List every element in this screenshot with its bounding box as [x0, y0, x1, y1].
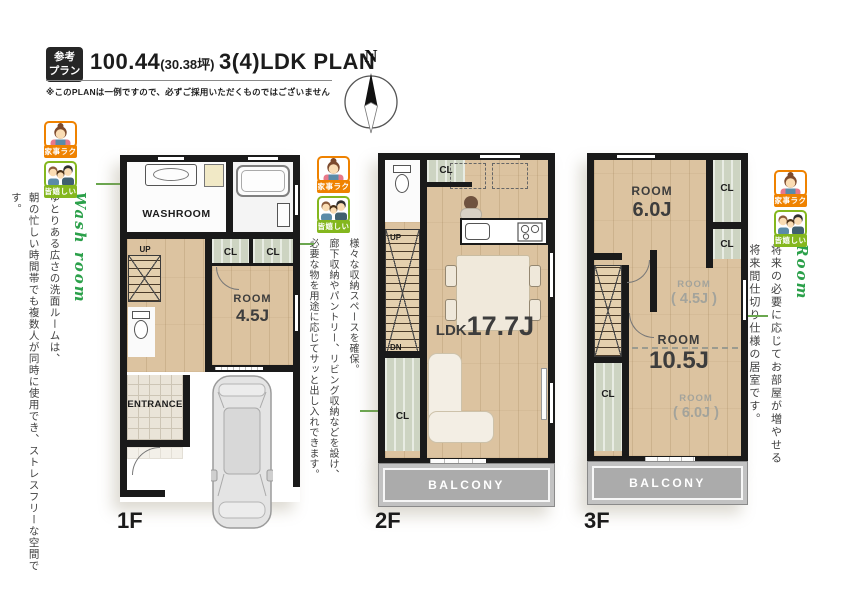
f3-wall — [706, 160, 713, 268]
f3-balcony-label: BALCONY — [629, 476, 706, 490]
f3-room4-name: ROOM — [657, 394, 735, 405]
f2-closet-side — [385, 358, 420, 451]
f1-wall — [226, 162, 233, 232]
f1-wall — [183, 375, 190, 447]
f1-room-label: ROOM 4.5J — [212, 293, 293, 325]
f3-room2-size: ( 4.5J ) — [655, 291, 733, 308]
f3-balcony-inner: BALCONY — [592, 466, 743, 500]
future-room-annotation-line1: 将来の必要に応じてお部屋が増やせる — [766, 244, 785, 482]
f1-garage-shutter — [215, 367, 263, 370]
badge-kaji-illustration — [317, 156, 350, 183]
f3-closet3-label: CL — [594, 389, 622, 400]
f1-shower-stand — [277, 203, 290, 227]
f1-room-name: ROOM — [212, 293, 293, 306]
floor3-plan: ROOM 6.0J CL CL ROOM ( 4.5J ) ROOM 10.5J… — [587, 153, 748, 463]
storage-annotation-line2: 廊下収納やパントリー、リビング収納などを設け、 — [324, 238, 341, 494]
f3-wall — [622, 357, 629, 456]
floor2-tag: 2F — [375, 508, 401, 534]
f3-room2-label: ROOM ( 4.5J ) — [655, 280, 733, 308]
storage-annotation-line3: 必要な物を用途に応じてサッと出し入れできます。 — [304, 238, 321, 494]
f2-window — [550, 383, 553, 423]
f1-wall — [120, 440, 190, 447]
washroom-annotation-line2: 朝の忙しい時間帯でも複数人が同時に使用でき、ストレスフリーな空間です。 — [6, 192, 42, 584]
f2-chair — [529, 265, 541, 287]
f2-wall-top — [378, 153, 555, 160]
f2-ldk-label: LDK17.7J — [422, 311, 548, 342]
f2-pantry-dashed — [492, 163, 528, 189]
badge-kaji-label: 家事ラク — [774, 194, 807, 207]
car-top-view — [211, 374, 273, 530]
f3-wall-top — [587, 153, 748, 160]
f1-toilet-room — [128, 307, 155, 357]
f3-wall — [594, 253, 622, 260]
f1-toilet-bowl — [134, 320, 148, 339]
f2-chair — [445, 265, 457, 287]
f2-wall — [427, 182, 472, 187]
f2-balcony-label: BALCONY — [428, 478, 505, 492]
f3-room3-size: 10.5J — [635, 347, 723, 375]
badge-ureshii-label: 皆嬉しい — [774, 234, 807, 247]
future-room-annotation: Room 将来の必要に応じてお部屋が増やせる 将来間仕切り仕様の居室です。 — [768, 244, 818, 482]
badge-ureshii-label: 皆嬉しい — [317, 220, 350, 233]
f2-kitchen-counter — [460, 218, 548, 245]
f1-closet1-label: CL — [212, 247, 249, 258]
f3-room3-name: ROOM — [635, 333, 723, 347]
f2-dn-label: DN — [387, 343, 417, 352]
reference-plan-badge-top: 参考 — [54, 51, 75, 64]
f1-cabinet — [204, 164, 224, 187]
badge-ureshii-illustration — [774, 210, 807, 237]
future-room-annotation-heading: Room — [789, 244, 815, 482]
f2-up-label: UP — [387, 233, 417, 242]
f1-window — [295, 295, 298, 331]
f1-toilet-tank — [132, 311, 150, 319]
f2-closet-side-label: CL — [385, 411, 420, 422]
f2-closet-top-label: CL — [427, 165, 465, 176]
reference-plan-badge-bottom: プラン — [49, 65, 81, 78]
f2-stairs — [385, 229, 420, 357]
f1-room-size: 4.5J — [212, 306, 293, 326]
badge-ureshii-right: 皆嬉しい — [774, 210, 807, 247]
floor2-plan: CL UP DN LDK17.7J CL — [378, 153, 555, 465]
f1-wall-left — [120, 155, 127, 497]
f3-wall-left — [587, 153, 594, 463]
title-area: 100.44 — [90, 49, 160, 74]
f1-washroom-label: WASHROOM — [127, 208, 226, 220]
badge-ureshii-label: 皆嬉しい — [44, 185, 77, 198]
f3-window — [743, 280, 746, 320]
badge-kaji-raku-right: 家事ラク — [774, 170, 807, 207]
washroom-annotation-heading: Wash room — [67, 192, 93, 584]
f1-closet2-label: CL — [253, 247, 293, 258]
f2-kitchen-sink — [465, 223, 490, 240]
f2-wall-left — [378, 153, 385, 465]
washroom-annotation-line1: ゆとりある広さの洗面ルームは、 — [45, 192, 63, 584]
f3-room1-size: 6.0J — [607, 199, 697, 222]
reference-plan-badge: 参考 プラン — [46, 47, 83, 82]
f1-window — [158, 157, 184, 160]
f1-bathtub — [236, 165, 290, 197]
f1-wall — [205, 239, 212, 372]
f2-window — [550, 253, 553, 297]
f2-toilet-bowl — [395, 174, 409, 193]
f1-wall — [120, 232, 300, 239]
disclaimer-text: ※このPLANは一例ですので、必ずご採用いただくものではございません — [46, 86, 330, 98]
f2-wall — [420, 351, 427, 458]
f1-entrance-label: ENTRANCE — [127, 399, 183, 410]
badge-kaji-label: 家事ラク — [317, 180, 350, 193]
f3-room4-size: ( 6.0J ) — [657, 405, 735, 422]
page-title: 100.44(30.38坪) 3(4)LDK PLAN — [90, 49, 375, 75]
f2-wall — [420, 160, 427, 222]
badge-ureshii-left: 皆嬉しい — [44, 161, 77, 198]
f2-sofa-horizontal — [428, 411, 494, 443]
badge-ureshii-illustration — [44, 161, 77, 188]
storage-annotation: 様々な収納スペースを確保。 廊下収納やパントリー、リビング収納などを設け、 必要… — [310, 238, 364, 494]
f2-balcony: BALCONY — [378, 463, 555, 507]
f2-toilet-room — [385, 160, 420, 222]
f3-closet2-label: CL — [713, 239, 741, 250]
title-divider — [46, 80, 332, 81]
f2-balcony-inner: BALCONY — [383, 468, 550, 502]
f3-closet3 — [594, 363, 622, 451]
f2-stove — [517, 222, 543, 242]
f3-window — [617, 155, 655, 158]
f3-balcony: BALCONY — [587, 461, 748, 505]
floorplan-page: 参考 プラン 100.44(30.38坪) 3(4)LDK PLAN ※このPL… — [0, 0, 842, 595]
f1-window — [248, 157, 278, 160]
f3-room4-label: ROOM ( 6.0J ) — [657, 394, 735, 422]
f1-washbasin — [145, 164, 197, 186]
badge-ureshii-illustration — [317, 196, 350, 223]
floor3-tag: 3F — [584, 508, 610, 534]
f3-stairs — [594, 265, 622, 357]
f3-wall — [594, 357, 622, 363]
compass-north-label: N — [365, 46, 378, 66]
badge-kaji-raku-mid: 家事ラク — [317, 156, 350, 193]
f2-window — [480, 155, 520, 158]
floor1-plan: WASHROOM UP CL CL ROOM 4.5J ENTRANCE — [120, 155, 300, 502]
washroom-annotation: Wash room ゆとりある広さの洗面ルームは、 朝の忙しい時間帯でも複数人が… — [34, 192, 96, 584]
badge-kaji-raku-left: 家事ラク — [44, 121, 77, 158]
compass-icon: N — [338, 45, 404, 137]
badge-kaji-label: 家事ラク — [44, 145, 77, 158]
f3-room1-name: ROOM — [607, 185, 697, 199]
f3-closet1-label: CL — [713, 183, 741, 194]
f1-window — [295, 185, 298, 215]
f1-up-label: UP — [130, 245, 160, 254]
badge-kaji-illustration — [774, 170, 807, 197]
f2-tv-board — [541, 368, 547, 420]
f1-stairs — [128, 255, 161, 302]
f3-room2-name: ROOM — [655, 280, 733, 291]
storage-annotation-line1: 様々な収納スペースを確保。 — [344, 238, 361, 494]
f2-ldk-size: 17.7J — [467, 311, 535, 341]
f1-washbasin-bowl — [153, 168, 189, 181]
f2-toilet-tank — [393, 165, 411, 173]
f1-wall — [212, 263, 293, 266]
title-tsubo: (30.38坪) — [160, 57, 214, 72]
f3-room1-label: ROOM 6.0J — [607, 185, 697, 222]
f3-room3-label: ROOM 10.5J — [635, 333, 723, 375]
badge-kaji-illustration — [44, 121, 77, 148]
f1-bathtub-inner — [241, 170, 285, 192]
f2-ldk-name: LDK — [436, 322, 467, 339]
f2-wall — [385, 351, 420, 358]
floor1-tag: 1F — [117, 508, 143, 534]
badge-ureshii-mid: 皆嬉しい — [317, 196, 350, 233]
